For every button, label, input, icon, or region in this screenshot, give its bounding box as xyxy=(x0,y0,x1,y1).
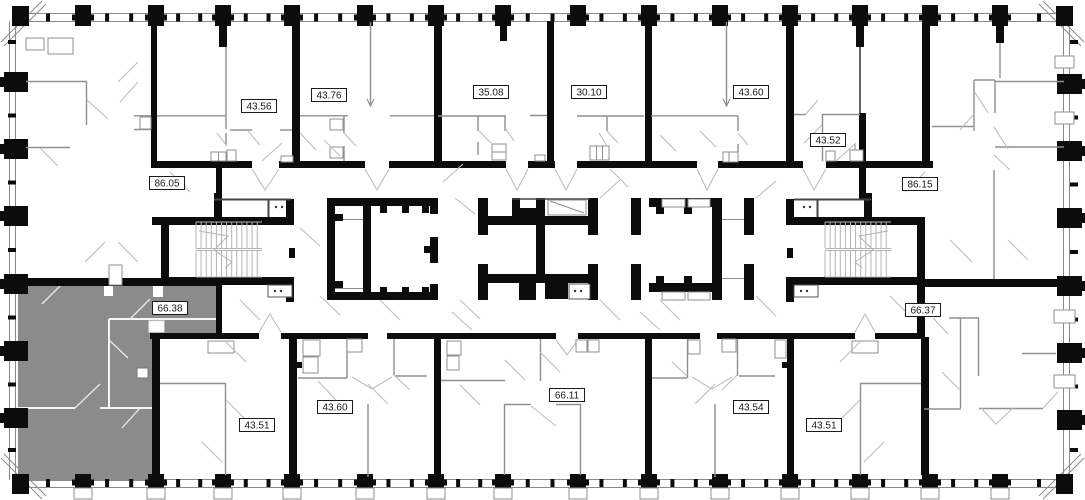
svg-text:43.56: 43.56 xyxy=(246,102,271,113)
svg-text:66.11: 66.11 xyxy=(555,391,580,402)
svg-text:43.76: 43.76 xyxy=(316,91,341,102)
svg-text:86.05: 86.05 xyxy=(154,179,179,190)
svg-text:43.60: 43.60 xyxy=(322,403,347,414)
svg-text:30.10: 30.10 xyxy=(576,88,601,99)
svg-text:43.51: 43.51 xyxy=(244,421,269,432)
svg-text:43.60: 43.60 xyxy=(738,88,763,99)
svg-text:35.08: 35.08 xyxy=(478,88,503,99)
svg-text:43.51: 43.51 xyxy=(811,421,836,432)
svg-text:43.52: 43.52 xyxy=(815,136,840,147)
svg-text:86.15: 86.15 xyxy=(907,180,932,191)
svg-text:66.37: 66.37 xyxy=(910,306,935,317)
svg-text:66.38: 66.38 xyxy=(157,304,182,315)
svg-text:43.54: 43.54 xyxy=(738,403,763,414)
